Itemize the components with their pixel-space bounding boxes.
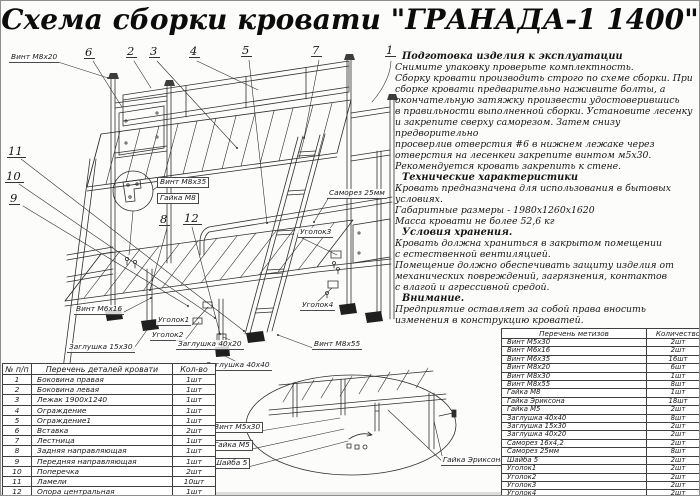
hardware-qty: 1шт [647,389,700,397]
label-shaiba-5: Шайба 5 [211,458,250,469]
hardware-qty: 8шт [647,414,700,422]
parts-header-num: № п/п [3,364,32,375]
label-zaglushka-40x20: Заглушка 40х20 [176,340,244,350]
part-num: 10 [3,466,32,476]
instruction-line: Предприятие оставляет за собой права вно… [395,304,695,315]
hardware-table-row: Гайка М5 2шт [502,406,700,414]
part-qty: 1шт [173,405,216,415]
hardware-name: Винт М6х35 [502,355,647,363]
part-qty: 1шт [173,385,216,395]
parts-table-row: 9 Передняя направляющая 1шт [3,456,216,466]
label-ugolok3: Уголок3 [298,228,333,238]
parts-table-row: 5 Ограждение1 1шт [3,415,216,425]
instruction-line: с влагой и агрессивной средой. [395,282,695,293]
hardware-table-row: Винт М6х16 2шт [502,347,700,355]
label-vint-m8x20: Винт М8х20 [9,53,59,63]
parts-header-qty: Кол-во [173,364,216,375]
assembly-sheet: Схема сборки кровати "ГРАНАДА-1 1400" [0,0,700,496]
instruction-line: Помещение должно обеспечивать защиту изд… [395,260,695,271]
hardware-qty: 1шт [647,372,700,380]
part-name: Вставка [32,426,173,436]
hardware-name: Винт М8х30 [502,372,647,380]
hardware-table-row: Уголок4 2шт [502,490,700,496]
lower-bunk-platform [65,220,391,306]
hardware-qty: 2шт [647,456,700,464]
hardware-name: Винт М8х55 [502,381,647,389]
detail-bubble-ladder-mount [246,368,456,475]
part-qty: 2шт [173,466,216,476]
hardware-qty: 16шт [647,355,700,363]
section-heading: Внимание. [395,293,695,304]
section-specs: Технические характеристики Кровать предн… [395,172,695,227]
label-gaika-eriksona: Гайка Эриксона [441,456,507,466]
instruction-line: отверстия на лесенкеи закрепите винтом м… [395,150,695,161]
part-name: Опора центральная [32,487,173,496]
hardware-table-row: Уголок1 2шт [502,465,700,473]
part-qty: 1шт [173,456,216,466]
hardware-name: Заглушка 15х30 [502,423,647,431]
hardware-name: Уголок3 [502,481,647,489]
part-num: 3 [3,395,32,405]
hardware-name: Уголок2 [502,473,647,481]
label-gaika-m8: Гайка М8 [157,193,199,204]
hardware-qty: 8шт [647,448,700,456]
part-qty: 1шт [173,446,216,456]
part-name: Боковина правая [32,375,173,385]
part-num: 2 [3,385,32,395]
label-vint-m6x16: Винт М6х16 [74,305,124,315]
instruction-line: изменения в конструкцию кроватей. [395,315,695,326]
hardware-qty: 8шт [647,381,700,389]
part-name: Лежак 1900х1240 [32,395,173,405]
hw-header-name: Перечень метизов [502,329,647,339]
label-vint-m5x30: Винт М5х30 [211,422,263,433]
hardware-qty: 2шт [647,431,700,439]
hardware-qty: 18шт [647,397,700,405]
part-num: 11 [3,477,32,487]
hardware-qty: 2шт [647,339,700,347]
hardware-table-row: Уголок2 2шт [502,473,700,481]
instructions-column: Подготовка изделия к эксплуатации Снимит… [395,51,695,326]
hardware-name: Шайба 5 [502,456,647,464]
hardware-qty: 2шт [647,347,700,355]
instruction-line: в правильности выполненной сборки. Устан… [395,106,695,117]
instruction-line: Снимите упаковку проверьте комплектность… [395,62,695,73]
hardware-qty: 2шт [647,481,700,489]
hardware-table-row: Уголок3 2шт [502,481,700,489]
section-storage: Условия хранения. Кровать должна хранить… [395,227,695,293]
part-name: Ограждение1 [32,415,173,425]
hardware-qty: 2шт [647,439,700,447]
part-qty: 10шт [173,477,216,487]
part-name: Лестница [32,436,173,446]
hardware-name: Саморез 16х4,2 [502,439,647,447]
instruction-line: просверлив отверстия #6 в нижнем лежаке … [395,139,695,150]
parts-table-row: 7 Лестница 1шт [3,436,216,446]
parts-table: № п/п Перечень деталей кровати Кол-во 1 … [2,363,216,496]
callout-2: 2 [126,45,137,58]
corner-brackets [193,251,341,324]
part-num: 6 [3,426,32,436]
label-gaika-m5: Гайка М5 [211,440,253,451]
parts-table-row: 8 Задняя направляющая 1шт [3,446,216,456]
hardware-qty: 2шт [647,423,700,431]
section-attention: Внимание. Предприятие оставляет за собой… [395,293,695,326]
part-name: Поперечка [32,466,173,476]
label-vint-m8x55: Винт М8х55 [312,340,362,350]
part-name: Задняя направляющая [32,446,173,456]
instruction-line: Рекомендуется кровать закрепить к стене. [395,161,695,172]
label-ugolok4: Уголок4 [300,301,335,311]
part-num: 9 [3,456,32,466]
hardware-table-row: Заглушка 15х30 2шт [502,423,700,431]
parts-table-row: 10 Поперечка 2шт [3,466,216,476]
hardware-table-row: Винт М8х55 8шт [502,381,700,389]
part-num: 8 [3,446,32,456]
part-num: 4 [3,405,32,415]
section-heading: Технические характеристики [395,172,695,183]
instruction-line: Сборку кровати производить строго по схе… [395,73,695,84]
callout-6: 6 [84,46,95,59]
part-name: Ламели [32,477,173,487]
part-name: Боковина левая [32,385,173,395]
part-qty: 1шт [173,436,216,446]
part-num: 7 [3,436,32,446]
part-qty: 1шт [173,415,216,425]
hardware-table-row: Винт М8х30 1шт [502,372,700,380]
instruction-line: с естественной вентиляцией. [395,249,695,260]
instruction-line: условиях. [395,194,695,205]
parts-table-row: 3 Лежак 1900х1240 1шт [3,395,216,405]
callout-4: 4 [189,45,200,58]
parts-table-row: 4 Ограждение 1шт [3,405,216,415]
hardware-name: Гайка М8 [502,389,647,397]
hardware-table: Перечень метизов Количество Винт М5х30 2… [501,328,700,496]
hardware-name: Уголок4 [502,490,647,496]
section-preparation: Подготовка изделия к эксплуатации Снимит… [395,51,695,172]
callout-9: 9 [9,192,20,205]
hardware-qty: 2шт [647,465,700,473]
part-qty: 1шт [173,487,216,496]
instruction-line: механических повреждений, загрязнения, к… [395,271,695,282]
hardware-qty: 2шт [647,490,700,496]
instruction-line: окончательную затяжку произвести удостов… [395,95,695,106]
hardware-table-row: Саморез 25мм 8шт [502,448,700,456]
label-samorez-25mm: Саморез 25мм [327,189,387,199]
hardware-table-row: Винт М6х35 16шт [502,355,700,363]
hardware-name: Уголок1 [502,465,647,473]
parts-table-row: 6 Вставка 2шт [3,426,216,436]
parts-header-name: Перечень деталей кровати [32,364,173,375]
detail-circle-bracket [113,171,153,268]
upper-bunk-platform [87,100,351,191]
parts-table-row: 1 Боковина правая 1шт [3,375,216,385]
hardware-table-row: Заглушка 40х20 2шт [502,431,700,439]
callout-5: 5 [241,44,252,57]
part-qty: 1шт [173,395,216,405]
callout-7: 7 [311,44,322,57]
part-qty: 1шт [173,375,216,385]
hardware-name: Заглушка 40х20 [502,431,647,439]
hardware-table-row: Шайба 5 2шт [502,456,700,464]
parts-table-row: 12 Опора центральная 1шт [3,487,216,496]
instruction-line: Кровать предназначена для использования … [395,183,695,194]
part-num: 5 [3,415,32,425]
instruction-line: сборке кровати предварительно наживите б… [395,84,695,95]
parts-table-row: 11 Ламели 10шт [3,477,216,487]
callout-8: 8 [159,213,170,226]
hardware-name: Гайка Эриксона [502,397,647,405]
part-num: 1 [3,375,32,385]
hardware-table-row: Винт М8х20 6шт [502,364,700,372]
section-heading: Подготовка изделия к эксплуатации [395,51,695,62]
instruction-line: Габаритные размеры - 1980х1260х1620 [395,205,695,216]
post-caps [108,54,398,100]
callout-11: 11 [7,145,26,158]
label-ugolok1: Уголок1 [156,316,191,326]
part-num: 12 [3,487,32,496]
hardware-table-row: Гайка Эриксона 18шт [502,397,700,405]
hardware-name: Саморез 25мм [502,448,647,456]
instruction-line: Масса кровати не более 52,6 кг [395,216,695,227]
hardware-table-row: Заглушка 40х40 8шт [502,414,700,422]
instruction-line: Кровать должна храниться в закрытом поме… [395,238,695,249]
label-vint-m8x35: Винт М8х35 [157,177,209,188]
hardware-table-row: Саморез 16х4,2 2шт [502,439,700,447]
part-name: Передняя направляющая [32,456,173,466]
label-zaglushka-15x30: Заглушка 15х30 [67,343,135,353]
callout-12: 12 [183,212,202,225]
hardware-name: Заглушка 40х40 [502,414,647,422]
hardware-name: Гайка М5 [502,406,647,414]
hardware-qty: 2шт [647,473,700,481]
instruction-line: и закрепите сверху саморезом. Затем сниз… [395,117,695,139]
part-name: Ограждение [32,405,173,415]
hardware-table-row: Гайка М8 1шт [502,389,700,397]
part-qty: 2шт [173,426,216,436]
hardware-name: Винт М5х30 [502,339,647,347]
hardware-qty: 2шт [647,406,700,414]
hardware-name: Винт М8х20 [502,364,647,372]
callout-3: 3 [149,45,160,58]
hw-header-qty: Количество [647,329,700,339]
hardware-table-row: Винт М5х30 2шт [502,339,700,347]
callout-10: 10 [5,170,24,183]
section-heading: Условия хранения. [395,227,695,238]
hardware-qty: 6шт [647,364,700,372]
hardware-name: Винт М6х16 [502,347,647,355]
parts-table-row: 2 Боковина левая 1шт [3,385,216,395]
